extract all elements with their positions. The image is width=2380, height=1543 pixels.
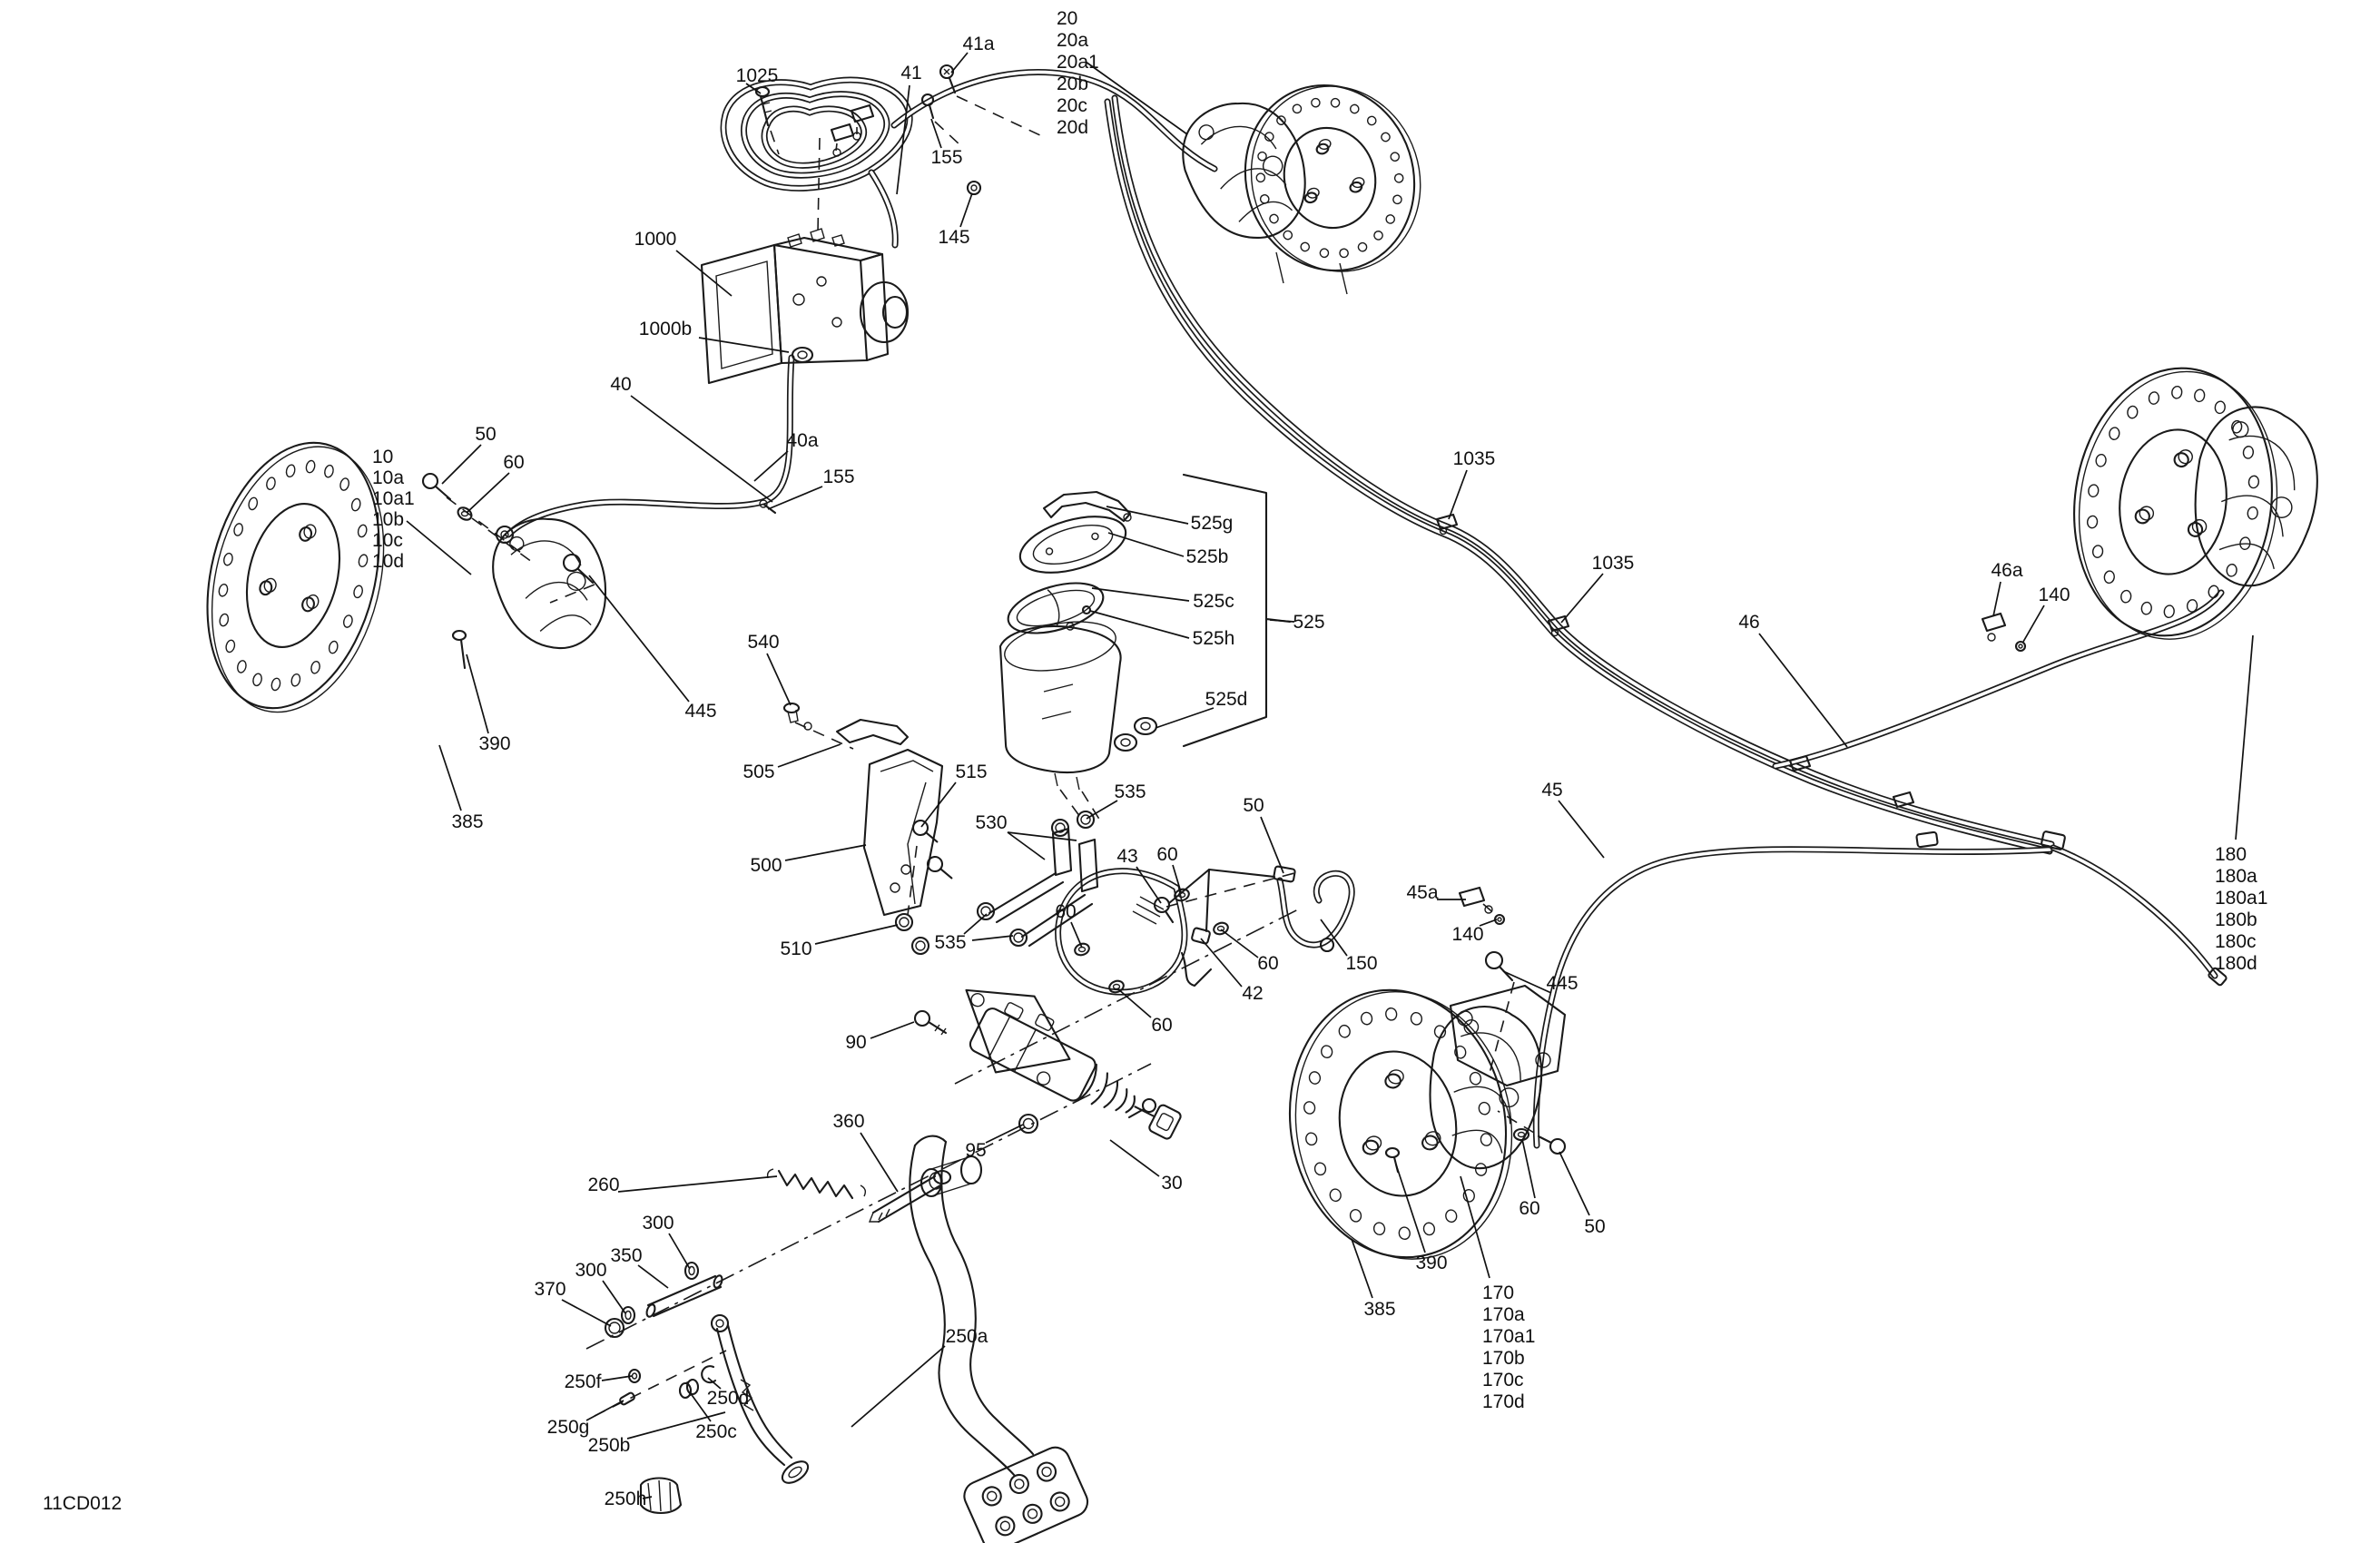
disc-hole <box>2104 570 2116 584</box>
part-label-525g: 525g <box>1191 513 1234 535</box>
part-label-60-b: 60 <box>1156 844 1177 866</box>
bolt-90 <box>915 1011 946 1035</box>
disc-hole <box>2141 602 2153 615</box>
washer-145 <box>968 182 980 194</box>
disc-hole <box>1321 1045 1333 1058</box>
leader-line-41a <box>951 53 968 73</box>
sleeve-350 <box>645 1274 723 1318</box>
disc-hole <box>233 523 244 536</box>
disc-hole <box>1385 214 1396 225</box>
part-label-390-right: 390 <box>1415 1253 1447 1274</box>
part-label-150: 150 <box>1345 953 1377 975</box>
leader-line-250g <box>586 1400 624 1420</box>
clip-250d <box>702 1366 715 1382</box>
part-label-95: 95 <box>965 1140 986 1162</box>
line-fittings <box>1073 866 1333 994</box>
part-label-40a: 40a <box>786 430 818 452</box>
disc-hole <box>218 584 229 597</box>
disc-hole <box>1373 231 1384 241</box>
disc-hole <box>2095 454 2107 467</box>
sensor-line <box>2053 848 2215 976</box>
part-label-535-b: 535 <box>934 932 966 954</box>
part-label-300-b: 300 <box>575 1260 606 1282</box>
rear-left-brake-hose <box>1536 850 2050 1145</box>
disc-hole <box>2092 545 2104 558</box>
disc-hole <box>1305 1132 1318 1145</box>
disc-hole <box>1300 241 1311 252</box>
leader-line-60-left <box>467 473 509 513</box>
disc-hole <box>1475 1163 1488 1176</box>
bolt-50 <box>1539 1136 1565 1154</box>
disc-hole <box>1478 1102 1490 1115</box>
disc-hole <box>1308 1071 1321 1085</box>
disc-hole <box>219 613 230 626</box>
disc-hole <box>1385 1007 1398 1021</box>
part-label-180-group: 180 180a 180a1 180b 180c 180d <box>2215 844 2267 975</box>
part-label-1025: 1025 <box>736 65 779 87</box>
brake-disc-front-right <box>1222 62 1444 295</box>
leader-line-250a <box>851 1346 945 1427</box>
bracket-505 <box>837 720 908 744</box>
clamp-45a <box>1460 888 1484 906</box>
hub-boss <box>1384 1073 1401 1088</box>
hub-boss <box>2174 452 2189 467</box>
disc-hole <box>2248 476 2260 489</box>
part-label-145: 145 <box>938 227 969 249</box>
disc-hole <box>1366 115 1377 126</box>
part-label-250g: 250g <box>547 1417 590 1439</box>
disc-hole <box>357 524 368 537</box>
part-label-390-left: 390 <box>478 733 510 755</box>
disc-hole <box>1303 1101 1316 1115</box>
part-label-30: 30 <box>1161 1173 1182 1194</box>
brake-caliper-rear-left <box>1416 998 1553 1176</box>
part-label-505: 505 <box>743 762 774 783</box>
part-label-525d: 525d <box>1205 689 1248 711</box>
leader-line-1035-a <box>1449 470 1467 519</box>
leader-line-540 <box>767 654 791 705</box>
leader-line-525 <box>1270 620 1294 622</box>
part-label-140-mid: 140 <box>1451 924 1483 946</box>
part-label-350: 350 <box>610 1245 642 1267</box>
leader-line-390-right <box>1396 1165 1425 1253</box>
brake-caliper-front-left <box>482 506 620 662</box>
part-label-140-right: 140 <box>2038 585 2070 606</box>
brake-disc-rear-left <box>1269 972 1532 1277</box>
leader-line-42 <box>1201 939 1242 987</box>
washer-300 <box>622 1307 634 1323</box>
leader-line-90 <box>870 1022 914 1038</box>
part-label-155-top: 155 <box>930 147 962 169</box>
washer-140 <box>2016 642 2025 651</box>
bushing-250c <box>680 1380 698 1398</box>
disc-hole <box>236 660 247 673</box>
part-label-50-mid: 50 <box>1243 795 1264 817</box>
pipe-break-mark <box>1276 252 1283 283</box>
leader-line-505 <box>778 744 841 767</box>
disc-hole <box>1398 1226 1411 1240</box>
part-label-10-group: 10 10a 10a1 10b 10c 10d <box>372 447 415 572</box>
part-label-525b: 525b <box>1186 546 1229 568</box>
disc-hole <box>2194 388 2206 402</box>
hub-boss <box>1421 1135 1439 1150</box>
disc-hole <box>1330 97 1341 108</box>
leader-line-30 <box>1110 1140 1159 1176</box>
part-label-530: 530 <box>975 812 1007 834</box>
disc-hole <box>1350 1209 1362 1223</box>
disc-hole <box>1349 103 1360 114</box>
leader-line-300-a <box>669 1233 690 1269</box>
disc-hole <box>1319 248 1330 259</box>
part-label-250f: 250f <box>565 1371 602 1393</box>
leader-line-40 <box>631 396 772 502</box>
part-label-90: 90 <box>845 1032 866 1054</box>
leader-line-535-b <box>972 936 1013 940</box>
disc-hole <box>1283 230 1293 241</box>
hub-boss <box>2188 522 2203 537</box>
leader-line-140-right <box>2023 605 2044 642</box>
leader-line-300-b <box>603 1281 625 1313</box>
leader-line-250f <box>602 1376 632 1381</box>
disc-hole <box>2226 564 2237 577</box>
disc-hole <box>1422 1222 1435 1235</box>
nut-535 <box>1077 811 1094 828</box>
part-label-525: 525 <box>1293 612 1324 634</box>
leader-line-1035-b <box>1561 574 1603 623</box>
disc-hole <box>270 677 281 691</box>
rear-brake-line-1 <box>1115 98 2051 844</box>
part-label-250h: 250h <box>605 1489 647 1510</box>
leader-line-60-right <box>1522 1139 1535 1198</box>
disc-hole <box>1381 132 1392 143</box>
static-line-art <box>423 65 2228 1543</box>
disc-hole <box>1339 248 1350 259</box>
part-label-46: 46 <box>1738 612 1759 634</box>
disc-hole <box>222 553 233 566</box>
disc-hole <box>358 554 369 567</box>
part-label-445-right: 445 <box>1546 973 1578 995</box>
washer-60 <box>1073 942 1090 958</box>
part-label-535-a: 535 <box>1114 781 1146 803</box>
leader-line-10-group <box>407 521 471 575</box>
disc-hole <box>252 673 263 686</box>
leader-line-60-c <box>1221 929 1258 958</box>
disc-hole <box>248 496 259 510</box>
pipe-break-mark <box>1340 263 1347 294</box>
disc-hole <box>2247 506 2258 520</box>
leader-line-20-group <box>1086 62 1187 134</box>
front-left-brake-hose <box>508 358 792 535</box>
caliper-bracket <box>1451 986 1565 1086</box>
abs-drop-line <box>871 172 895 245</box>
spring-260 <box>779 1171 852 1198</box>
disc-hole <box>323 465 334 478</box>
disc-hole <box>342 614 353 628</box>
part-label-43: 43 <box>1116 846 1137 868</box>
part-label-250a: 250a <box>946 1326 988 1348</box>
disc-hole <box>310 661 321 674</box>
disc-hole <box>1269 213 1280 224</box>
part-label-540: 540 <box>747 632 779 654</box>
hose-45-fitting <box>1916 832 1938 848</box>
pedal-footpad <box>959 1443 1092 1543</box>
brake-disc-rear-right <box>2057 355 2294 652</box>
disc-hole <box>1410 1012 1422 1026</box>
part-label-250d: 250d <box>707 1388 750 1410</box>
nut-510 <box>912 938 929 954</box>
part-label-1035-a: 1035 <box>1453 448 1496 470</box>
part-label-60-a: 60 <box>1055 901 1076 923</box>
leader-line-46a <box>1993 582 2001 616</box>
disc-hole <box>2243 446 2255 459</box>
reservoir-cap-525b <box>1014 506 1132 584</box>
leader-line-515 <box>921 782 956 827</box>
part-label-45a: 45a <box>1406 882 1438 904</box>
abs-grommet-1000b <box>792 348 812 362</box>
part-label-370: 370 <box>534 1279 565 1301</box>
spacer-530 <box>1079 840 1097 891</box>
nut-95 <box>1019 1115 1038 1133</box>
part-label-250b: 250b <box>588 1435 631 1457</box>
bracket-tube <box>989 873 1063 922</box>
leader-line-45 <box>1559 801 1604 858</box>
disc-hole <box>1393 172 1404 183</box>
part-label-50-left: 50 <box>475 424 496 446</box>
leader-line-260 <box>618 1176 777 1192</box>
disc-hole <box>339 477 350 491</box>
generated-components <box>181 62 2330 1277</box>
leader-line-385-left <box>439 745 461 811</box>
sensor-line <box>2053 848 2215 976</box>
part-label-60-c: 60 <box>1257 953 1278 975</box>
leader-line-50-right <box>1559 1152 1589 1215</box>
disc-hole <box>1361 1012 1373 1026</box>
leader-line-180-group <box>2236 635 2253 840</box>
part-label-525h: 525h <box>1193 628 1235 650</box>
grommet-525d <box>1135 718 1156 734</box>
leader-line-370 <box>562 1300 611 1326</box>
disc-hole <box>1338 1025 1351 1038</box>
brake-pedal-group <box>586 1064 1151 1543</box>
hose-42-tail <box>1182 953 1211 986</box>
part-label-500: 500 <box>750 855 782 877</box>
rear-right-caliper-hardware <box>1982 614 2025 651</box>
pipe-43-50 <box>1169 870 1274 903</box>
part-label-20-group: 20 20a 20a1 20b 20c 20d <box>1057 8 1099 139</box>
disc-hole <box>1255 172 1266 183</box>
part-label-60-left: 60 <box>503 452 524 474</box>
leader-line-50-left <box>442 445 481 484</box>
pin-390 <box>453 631 466 640</box>
part-label-360: 360 <box>832 1111 864 1133</box>
pipe-42-drop <box>1206 870 1209 931</box>
leader-line-50-mid <box>1261 817 1283 873</box>
disc-hole <box>2109 427 2120 440</box>
disc-hole <box>285 464 296 477</box>
part-label-figure-code: 11CD012 <box>43 1493 122 1515</box>
fitting-42 <box>1191 928 1210 944</box>
leader-line-350 <box>638 1265 668 1288</box>
disc-hole <box>265 477 276 490</box>
abs-module <box>702 87 908 383</box>
disc-hole <box>350 498 361 512</box>
part-label-45: 45 <box>1541 780 1562 801</box>
part-label-42: 42 <box>1242 983 1263 1005</box>
hose-150 <box>1280 873 1352 945</box>
leader-line-525h <box>1090 611 1189 638</box>
part-label-170-group: 170 170a 170a1 170b 170c 170d <box>1482 1283 1535 1413</box>
disc-hole <box>1292 103 1303 114</box>
parts-diagram-canvas: 102541a4120 20a 20a1 20b 20c 20d15514510… <box>0 0 2380 1543</box>
disc-hole <box>353 585 364 598</box>
diagram-line-art <box>0 0 2380 1543</box>
leader-line-525c <box>1092 588 1189 601</box>
disc-hole <box>1314 1162 1327 1175</box>
part-label-510: 510 <box>780 939 811 960</box>
part-label-385-left: 385 <box>451 811 483 833</box>
leader-line-46 <box>1759 634 1847 747</box>
leader-line-95 <box>986 1125 1023 1143</box>
part-label-250c: 250c <box>695 1421 737 1443</box>
leader-line-170-group <box>1460 1176 1490 1278</box>
leader-line-500 <box>785 845 866 860</box>
grommet-525d <box>1115 734 1136 751</box>
bolt-43 <box>1155 898 1169 912</box>
pin-390 <box>1386 1148 1399 1157</box>
disc-hole <box>1392 194 1403 205</box>
part-label-1035-b: 1035 <box>1592 553 1635 575</box>
disc-hole <box>225 639 236 653</box>
disc-hole <box>2171 386 2183 399</box>
nut-535 <box>1010 929 1027 946</box>
rear-left-brake-hose <box>1536 850 2050 1145</box>
disc-hole <box>305 460 316 474</box>
disc-hole <box>2149 391 2160 405</box>
hub-boss <box>2135 509 2150 525</box>
nut-510 <box>896 914 912 930</box>
part-label-260: 260 <box>587 1174 619 1196</box>
disc-hole <box>1311 97 1322 108</box>
leader-line-535-a <box>1087 801 1117 819</box>
disc-hole <box>2215 400 2227 414</box>
brake-fluid-reservoir-group <box>1000 475 1290 821</box>
bolt-445 <box>1486 952 1512 980</box>
hub-boss <box>1362 1139 1380 1155</box>
leader-line-445-left <box>589 575 689 702</box>
disc-hole <box>2127 406 2139 419</box>
hydraulic-lines <box>508 72 2228 1145</box>
part-label-60-right: 60 <box>1519 1198 1539 1220</box>
leader-line-535-b <box>964 914 987 934</box>
part-label-1000: 1000 <box>634 229 677 251</box>
disc-hole <box>2163 604 2175 618</box>
disc-hole <box>2087 516 2099 529</box>
leader-line-390-left <box>467 654 488 733</box>
part-label-50-right: 50 <box>1584 1216 1605 1238</box>
nut-370 <box>605 1319 624 1337</box>
leader-line-1000b <box>699 338 789 352</box>
disc-hole <box>2120 590 2132 604</box>
part-label-300-a: 300 <box>642 1213 674 1234</box>
leader-line-525d <box>1156 708 1214 728</box>
leader-line-360 <box>861 1133 898 1192</box>
front-left-brake-hose <box>508 358 792 535</box>
disc-hole <box>1373 1222 1386 1235</box>
master-cylinder-group <box>915 908 1302 1156</box>
hose-clamp <box>831 124 853 141</box>
part-label-525c: 525c <box>1193 591 1234 613</box>
part-label-445-left: 445 <box>684 701 716 722</box>
leader-line-145 <box>960 193 972 227</box>
part-label-40: 40 <box>610 374 631 396</box>
rear-brake-line-2 <box>1107 102 2050 851</box>
clevis-30 <box>1148 1104 1183 1140</box>
pin-250g <box>619 1392 635 1406</box>
disc-hole <box>2088 484 2100 497</box>
pivot-axis <box>586 1064 1151 1349</box>
disc-hole <box>1390 152 1401 162</box>
part-label-1000b: 1000b <box>639 319 692 340</box>
part-label-515: 515 <box>955 762 987 783</box>
disc-hole <box>1329 1188 1342 1202</box>
leader-line-60-a <box>1071 922 1082 948</box>
part-label-155-mid: 155 <box>822 467 854 488</box>
disc-hole <box>290 673 301 687</box>
disc-hole <box>328 641 339 654</box>
rear-brake-line-2 <box>1107 102 2050 851</box>
rear-brake-line-1 <box>1115 98 2051 844</box>
leader-line-510 <box>815 925 898 944</box>
disc-hole <box>1470 1072 1482 1086</box>
heat-shield-group <box>784 703 957 954</box>
disc-hole <box>1445 1209 1458 1223</box>
part-label-60-d: 60 <box>1151 1015 1172 1037</box>
part-label-46a: 46a <box>1991 560 2022 582</box>
disc-hole <box>1357 241 1368 252</box>
part-label-41a: 41a <box>962 34 994 55</box>
reservoir-body <box>1000 626 1121 772</box>
part-label-41: 41 <box>900 63 921 84</box>
part-label-385-right: 385 <box>1363 1299 1395 1321</box>
shield-500 <box>864 750 942 915</box>
